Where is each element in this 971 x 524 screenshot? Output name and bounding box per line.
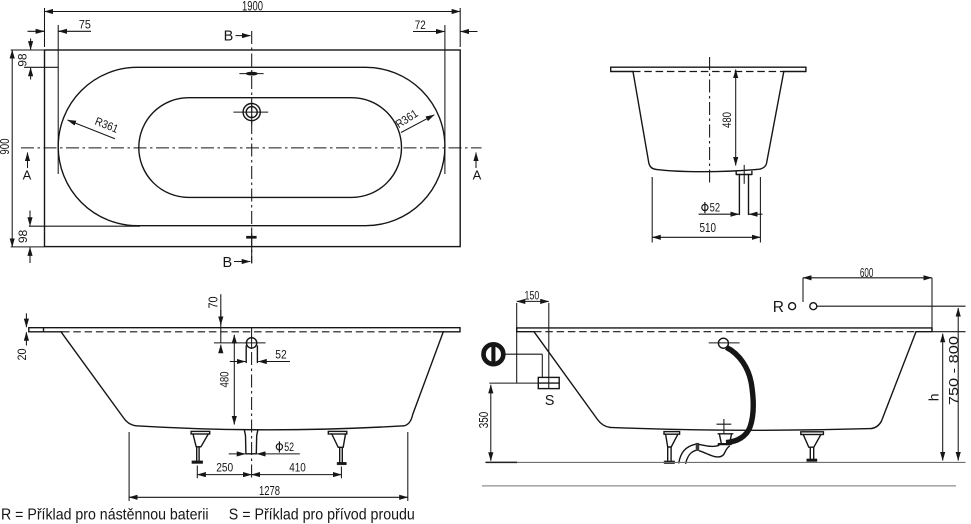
svg-text:h: h	[926, 394, 942, 402]
svg-text:20: 20	[17, 349, 29, 361]
svg-text:1278: 1278	[259, 483, 280, 498]
svg-text:A: A	[473, 167, 482, 182]
svg-text:52: 52	[284, 440, 294, 454]
svg-text:350: 350	[477, 412, 491, 429]
svg-text:75: 75	[79, 19, 91, 31]
svg-text:1900: 1900	[242, 0, 263, 13]
svg-text:600: 600	[860, 266, 874, 280]
svg-text:S: S	[545, 393, 555, 409]
svg-text:52: 52	[710, 200, 721, 214]
svg-text:52: 52	[275, 347, 287, 361]
svg-text:150: 150	[525, 291, 540, 303]
svg-text:R = Příklad pro nástěnnou bate: R = Příklad pro nástěnnou baterii	[1, 506, 209, 523]
svg-text:B: B	[222, 255, 232, 271]
svg-text:70: 70	[207, 296, 221, 308]
svg-text:750 - 800: 750 - 800	[946, 336, 961, 405]
svg-text:S = Příklad pro přívod proudu: S = Příklad pro přívod proudu	[229, 506, 415, 523]
svg-text:510: 510	[700, 220, 717, 235]
svg-text:480: 480	[217, 371, 231, 387]
svg-text:98: 98	[18, 53, 30, 66]
svg-text:480: 480	[720, 112, 734, 128]
svg-text:98: 98	[18, 230, 30, 243]
svg-text:72: 72	[415, 20, 426, 32]
svg-text:A: A	[23, 167, 32, 182]
svg-text:900: 900	[0, 139, 12, 155]
svg-text:B: B	[224, 29, 234, 45]
svg-text:250: 250	[216, 460, 233, 474]
svg-text:410: 410	[289, 460, 306, 474]
svg-text:R: R	[773, 299, 784, 316]
